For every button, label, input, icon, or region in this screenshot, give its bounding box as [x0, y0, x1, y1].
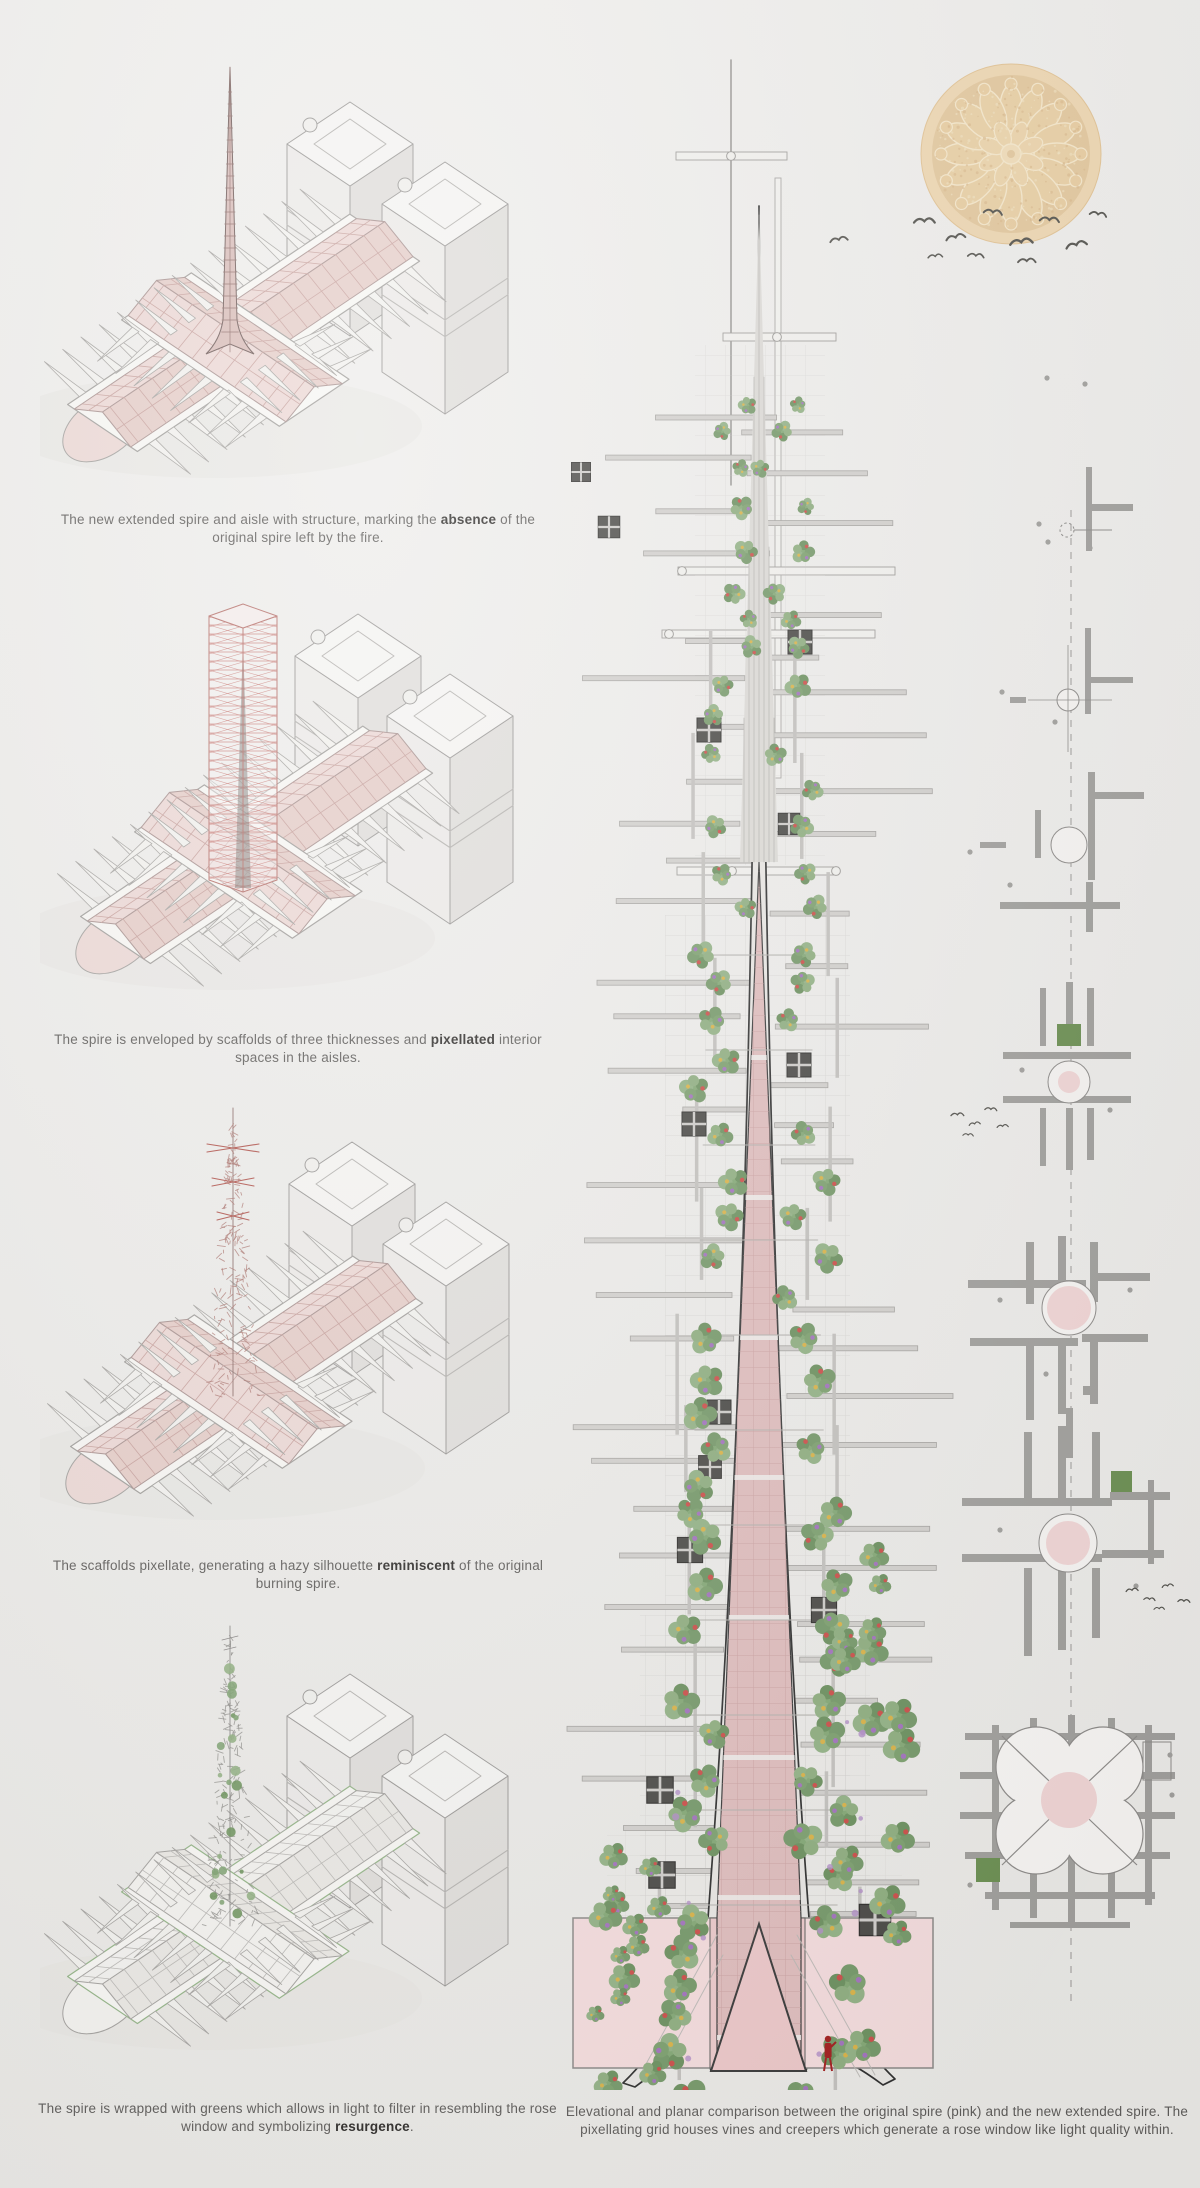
caption-text: The scaffolds pixellate, generating a ha…: [53, 1558, 377, 1573]
cathedral-axon-2: [40, 558, 520, 1008]
cathedral-axon-4: [40, 1622, 520, 2072]
figure-caption-2: The spire is enveloped by scaffolds of t…: [42, 1031, 554, 1067]
birds-icon: [900, 160, 1120, 270]
plan-diagrams-column: [940, 340, 1200, 2020]
caption-bold: pixellated: [431, 1032, 495, 1047]
caption-text: .: [410, 2119, 414, 2134]
birds-icon: [1118, 1578, 1200, 1620]
birds-icon: [945, 1098, 1015, 1146]
spire-elevation-drawing: [545, 55, 957, 2090]
caption-text: The spire is wrapped with greens which a…: [38, 2101, 557, 2134]
caption-bold: absence: [441, 512, 496, 527]
cathedral-axon-1: [40, 52, 520, 502]
caption-text: The spire is enveloped by scaffolds of t…: [54, 1032, 431, 1047]
caption-text: Elevational and planar comparison betwee…: [566, 2104, 1188, 2137]
elevation-caption: Elevational and planar comparison betwee…: [557, 2103, 1197, 2139]
caption-bold: reminiscent: [377, 1558, 455, 1573]
presentation-board: The new extended spire and aisle with st…: [0, 0, 1200, 2188]
caption-bold: resurgence: [335, 2119, 410, 2134]
bird-icon: [825, 232, 859, 256]
figure-caption-3: The scaffolds pixellate, generating a ha…: [42, 1557, 554, 1593]
cathedral-axon-3: [40, 1088, 520, 1538]
figure-caption-4: The spire is wrapped with greens which a…: [30, 2100, 565, 2136]
figure-caption-1: The new extended spire and aisle with st…: [42, 511, 554, 547]
caption-text: The new extended spire and aisle with st…: [61, 512, 441, 527]
